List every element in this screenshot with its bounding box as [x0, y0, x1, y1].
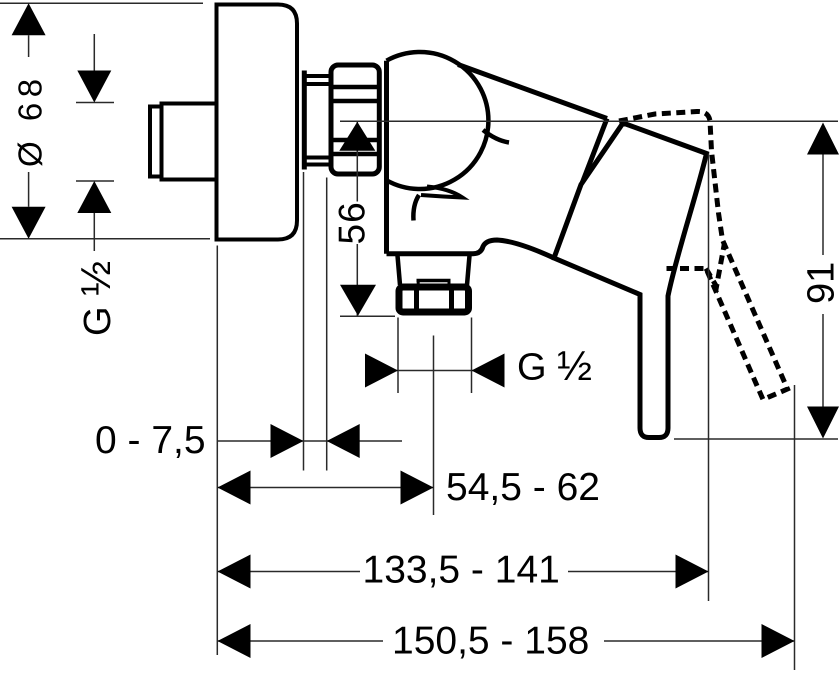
svg-text:0 - 7,5: 0 - 7,5 — [95, 419, 206, 462]
svg-text:G: G — [517, 347, 547, 389]
svg-text:91: 91 — [801, 262, 840, 304]
svg-text:133,5 - 141: 133,5 - 141 — [363, 549, 560, 592]
svg-text:56: 56 — [332, 201, 373, 244]
svg-text:54,5 - 62: 54,5 - 62 — [446, 466, 600, 509]
svg-text:½: ½ — [557, 342, 592, 389]
svg-text:150,5 - 158: 150,5 - 158 — [392, 620, 589, 663]
svg-text:Ø 68: Ø 68 — [12, 73, 49, 167]
svg-text:G ½: G ½ — [72, 261, 119, 336]
